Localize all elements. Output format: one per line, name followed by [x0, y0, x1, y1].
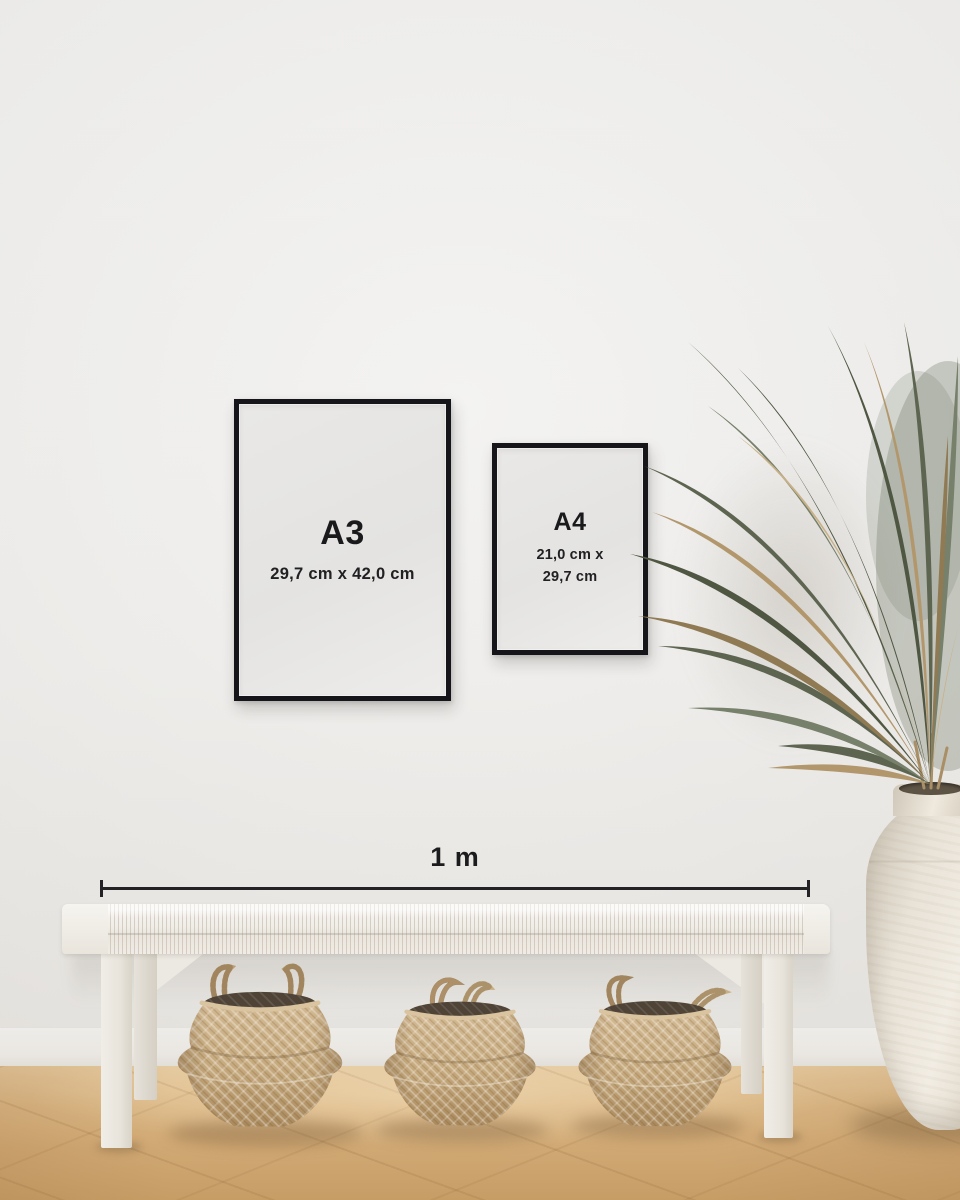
frame-a4-dimensions: 21,0 cm x 29,7 cm — [536, 545, 603, 587]
frame-a4-label: A4 — [554, 510, 587, 535]
bench-leg-left-back — [134, 950, 157, 1100]
bench-leg-right-front — [764, 950, 793, 1138]
ruler-line — [100, 887, 810, 890]
frame-a3-dimensions: 29,7 cm x 42,0 cm — [270, 565, 415, 584]
basket-3 — [562, 970, 748, 1142]
palm-plant — [618, 316, 960, 816]
frame-a4-dimensions-line2: 29,7 cm — [543, 569, 598, 585]
frame-a3: A3 29,7 cm x 42,0 cm — [234, 399, 451, 701]
frame-a3-paper: A3 29,7 cm x 42,0 cm — [239, 404, 446, 696]
basket-1 — [160, 958, 360, 1144]
frame-a3-label: A3 — [320, 516, 364, 550]
bench-seat — [62, 904, 830, 954]
frame-a4-dimensions-line1: 21,0 cm x — [536, 547, 603, 563]
basket-2 — [368, 968, 552, 1144]
scale-label: 1 m — [100, 842, 810, 873]
room-scene: A3 29,7 cm x 42,0 cm A4 21,0 cm x 29,7 c… — [0, 0, 960, 1200]
bench-leg-left-front — [101, 950, 132, 1148]
